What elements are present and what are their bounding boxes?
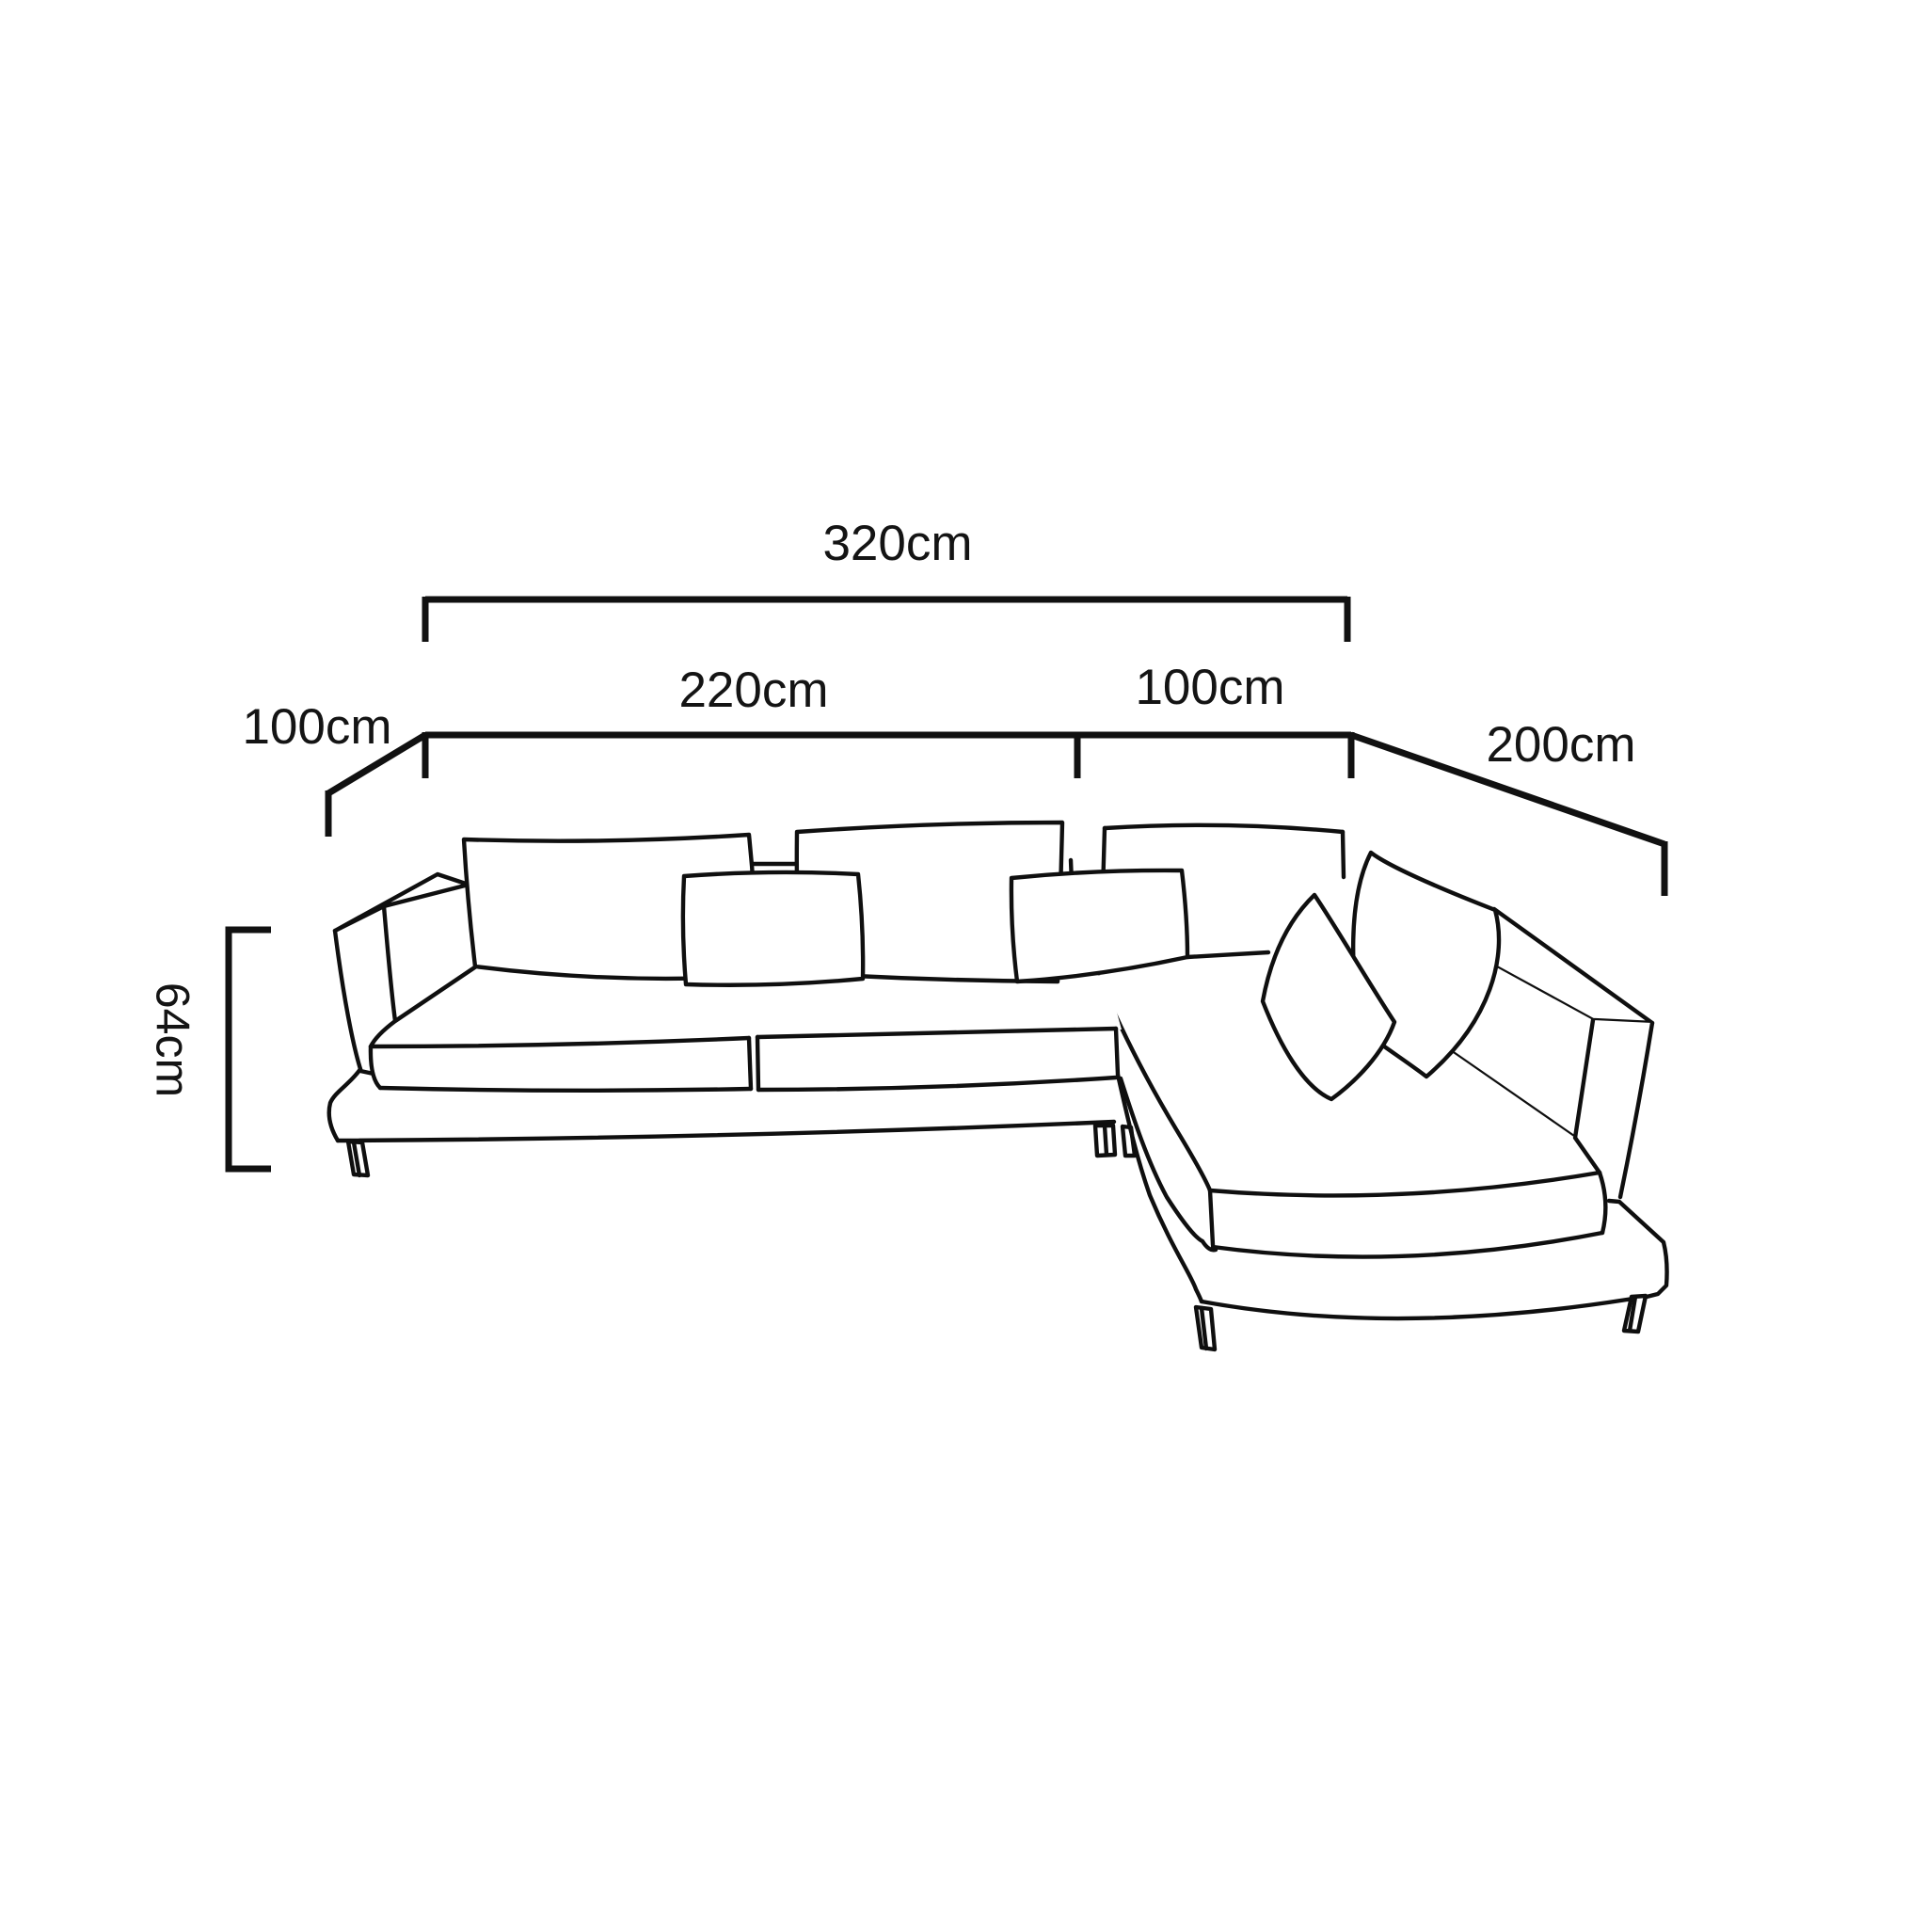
svg-text:100cm: 100cm [1135, 660, 1284, 715]
svg-text:100cm: 100cm [242, 699, 391, 755]
svg-text:64cm: 64cm [147, 982, 199, 1097]
svg-text:200cm: 200cm [1486, 717, 1635, 773]
svg-text:220cm: 220cm [678, 663, 828, 718]
svg-text:320cm: 320cm [822, 516, 972, 571]
